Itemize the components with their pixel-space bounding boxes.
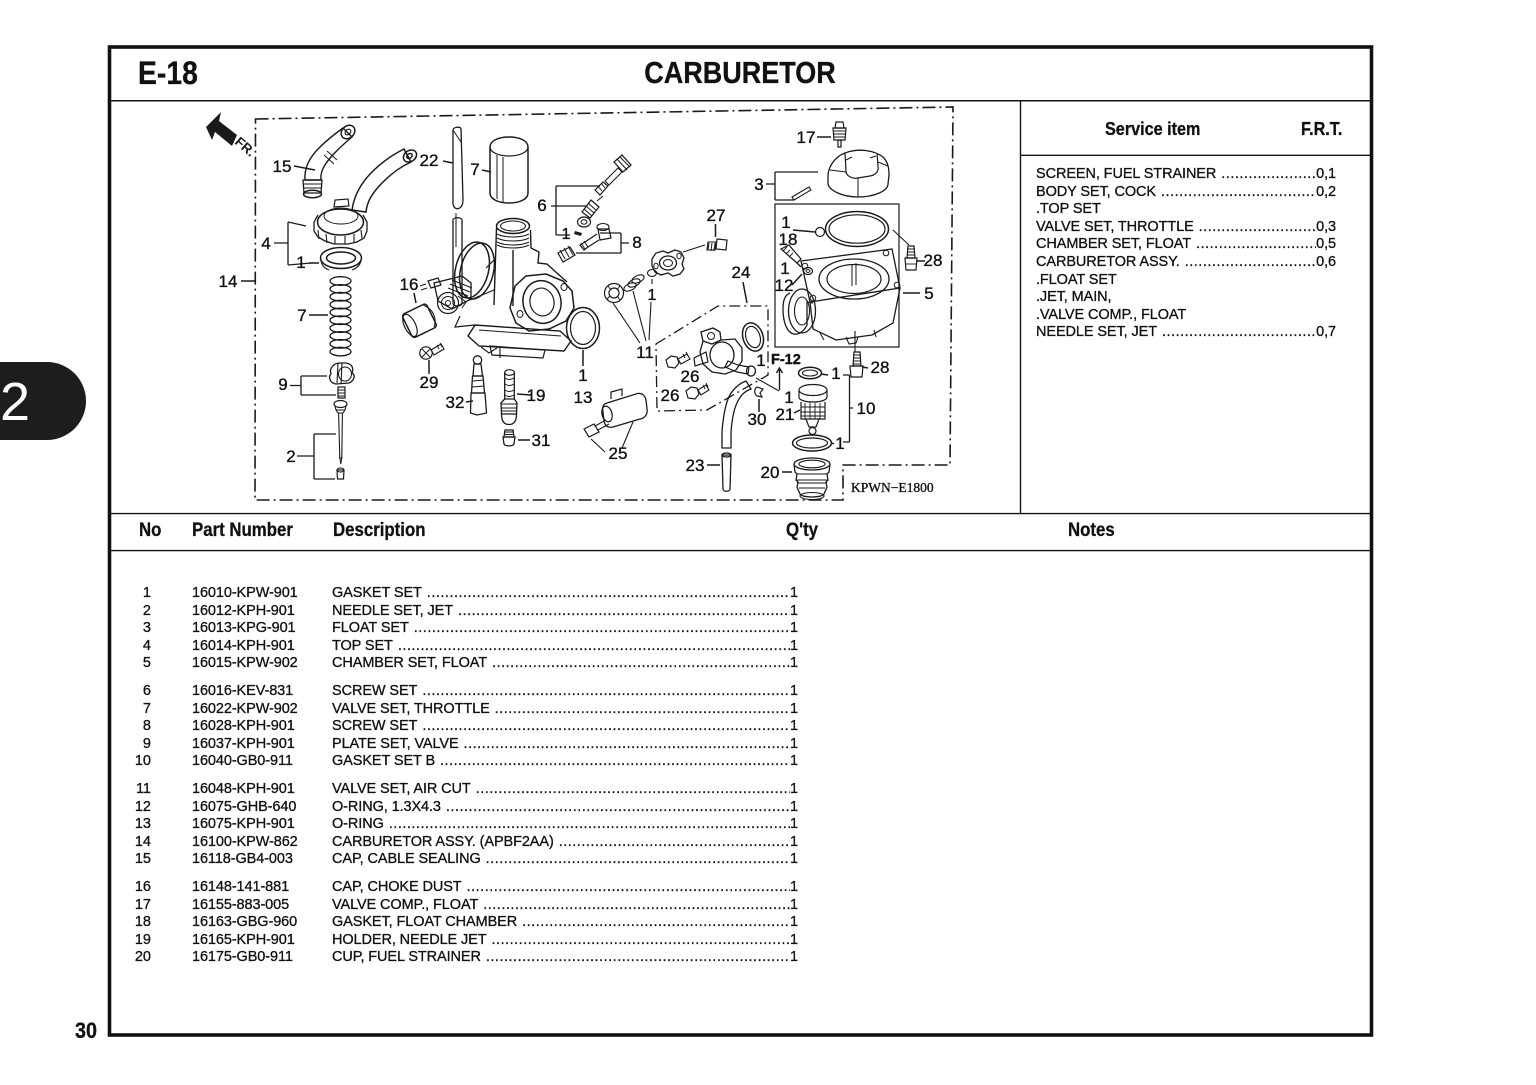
svg-text:10: 10: [857, 399, 876, 418]
svg-text:30: 30: [748, 410, 767, 429]
svg-text:F-12: F-12: [771, 352, 801, 368]
svg-text:21: 21: [776, 405, 795, 424]
svg-text:1: 1: [835, 434, 844, 453]
svg-text:3: 3: [754, 175, 763, 194]
svg-text:7: 7: [297, 306, 306, 325]
svg-text:4: 4: [261, 234, 270, 253]
svg-text:24: 24: [732, 263, 751, 282]
svg-text:26: 26: [681, 367, 700, 386]
svg-text:16: 16: [400, 275, 419, 294]
svg-text:6: 6: [537, 196, 546, 215]
svg-text:1: 1: [578, 366, 587, 385]
svg-text:15: 15: [273, 157, 292, 176]
svg-text:1: 1: [831, 364, 840, 383]
svg-text:11: 11: [636, 343, 654, 362]
svg-text:29: 29: [420, 373, 439, 392]
svg-text:FR.: FR.: [232, 134, 258, 160]
svg-text:14: 14: [219, 272, 238, 291]
svg-text:KPWN−E1800: KPWN−E1800: [851, 480, 934, 495]
svg-text:17: 17: [797, 128, 816, 147]
svg-text:27: 27: [707, 206, 726, 225]
svg-text:20: 20: [761, 463, 780, 482]
svg-text:13: 13: [574, 388, 593, 407]
svg-text:1: 1: [648, 287, 657, 304]
svg-text:26: 26: [661, 386, 680, 405]
svg-text:2: 2: [286, 447, 295, 466]
svg-text:5: 5: [924, 284, 933, 303]
svg-text:1: 1: [562, 226, 571, 243]
svg-text:12: 12: [775, 276, 794, 295]
svg-text:31: 31: [532, 431, 551, 450]
svg-text:1: 1: [756, 351, 765, 370]
svg-text:8: 8: [632, 233, 641, 252]
svg-text:32: 32: [446, 393, 465, 412]
svg-text:25: 25: [609, 444, 628, 463]
svg-text:28: 28: [924, 251, 943, 270]
svg-text:7: 7: [470, 160, 479, 179]
svg-text:2: 2: [0, 372, 30, 432]
svg-text:28: 28: [871, 358, 890, 377]
svg-text:23: 23: [686, 456, 705, 475]
svg-text:9: 9: [278, 375, 287, 394]
svg-text:1: 1: [296, 253, 305, 272]
svg-text:22: 22: [420, 151, 439, 170]
